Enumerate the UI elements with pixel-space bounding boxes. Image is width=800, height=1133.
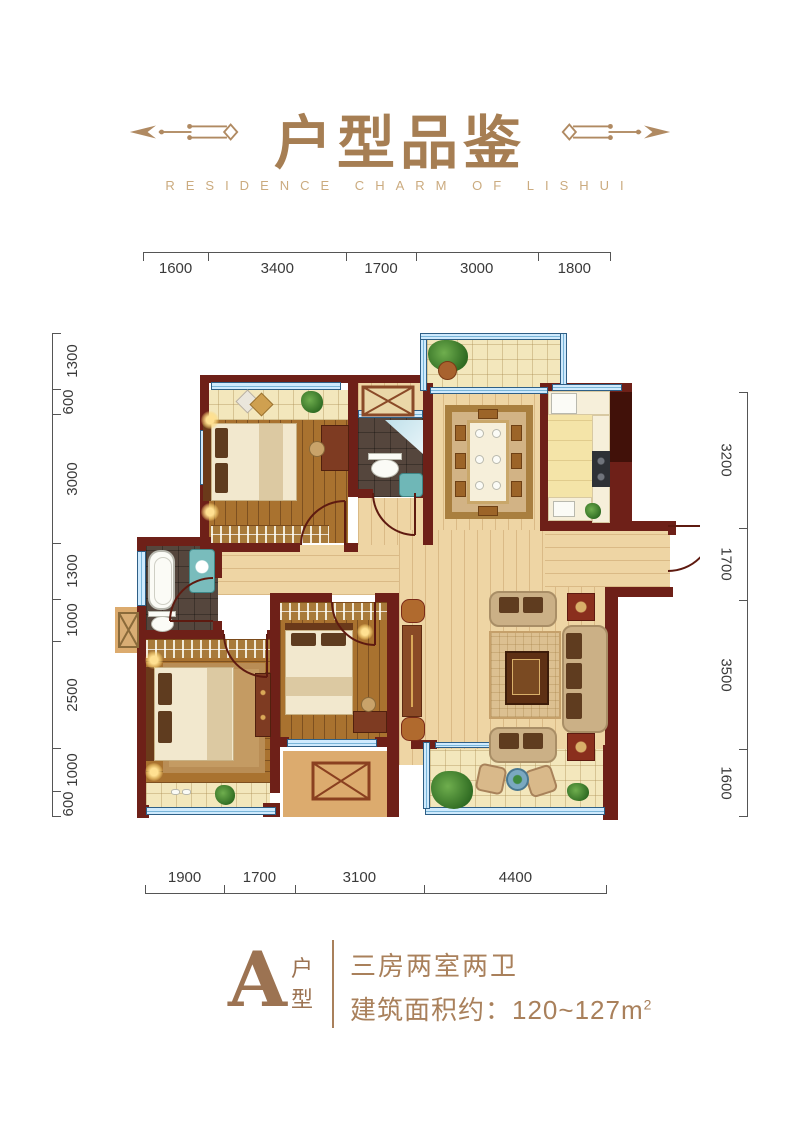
tick bbox=[739, 392, 748, 393]
dim-track bbox=[747, 392, 748, 817]
title-flourish-left-icon bbox=[128, 118, 240, 146]
dim-line-top: 1600 3400 1700 3000 1800 bbox=[143, 252, 611, 288]
footer-divider bbox=[332, 940, 334, 1028]
dim-label: 1700 bbox=[243, 869, 276, 886]
tick bbox=[224, 885, 225, 894]
dim-line-bottom: 1900 1700 3100 4400 bbox=[145, 858, 607, 894]
shaft-symbols bbox=[119, 387, 413, 799]
dim-track bbox=[143, 252, 611, 253]
tick bbox=[52, 333, 61, 334]
tick bbox=[538, 252, 539, 261]
tick bbox=[52, 748, 61, 749]
tick bbox=[52, 641, 61, 642]
dim-label: 3000 bbox=[460, 260, 493, 277]
dim-label: 3100 bbox=[343, 869, 376, 886]
dim-label: 1900 bbox=[168, 869, 201, 886]
dim-label: 1700 bbox=[364, 260, 397, 277]
tick bbox=[145, 885, 146, 894]
dim-label: 4400 bbox=[499, 869, 532, 886]
dim-label: 1600 bbox=[718, 763, 735, 803]
tick bbox=[739, 528, 748, 529]
dim-label: 1000 bbox=[64, 753, 81, 786]
page-title: 户型品鉴 bbox=[0, 96, 800, 180]
door-arcs bbox=[170, 493, 700, 677]
dim-label: 3400 bbox=[261, 260, 294, 277]
dim-line-right: 3200 1700 3500 1600 bbox=[732, 392, 762, 817]
unit-letter: A bbox=[228, 942, 287, 1018]
dim-label: 3000 bbox=[64, 462, 81, 495]
dim-line-left: 1300 600 3000 1300 1000 2500 1000 600 bbox=[52, 333, 86, 817]
area-superscript: 2 bbox=[644, 996, 653, 1012]
tick bbox=[346, 252, 347, 261]
tick bbox=[739, 749, 748, 750]
dim-label: 1600 bbox=[159, 260, 192, 277]
tick bbox=[208, 252, 209, 261]
rooms-description: 三房两室两卫 bbox=[350, 946, 518, 983]
tick bbox=[610, 252, 611, 261]
area-text: 建筑面积约：120~127m bbox=[350, 995, 644, 1025]
tick bbox=[739, 600, 748, 601]
floor-plan bbox=[115, 325, 700, 820]
dim-label: 2500 bbox=[64, 678, 81, 711]
title-flourish-right-icon bbox=[560, 118, 672, 146]
dim-label: 600 bbox=[60, 792, 77, 817]
dim-track bbox=[145, 893, 607, 894]
dim-track bbox=[52, 333, 53, 817]
tick bbox=[295, 885, 296, 894]
tick bbox=[143, 252, 144, 261]
tick bbox=[416, 252, 417, 261]
tick bbox=[52, 599, 61, 600]
dim-label: 1000 bbox=[64, 603, 81, 636]
unit-type-label: 户 型 bbox=[291, 953, 313, 1015]
tick bbox=[52, 543, 61, 544]
dim-label: 1300 bbox=[64, 554, 81, 587]
dim-label: 1800 bbox=[558, 260, 591, 277]
doors-and-shafts-overlay bbox=[115, 325, 700, 820]
tick bbox=[606, 885, 607, 894]
page-subtitle: RESIDENCE CHARM OF LISHUI bbox=[0, 178, 800, 193]
dim-label: 3200 bbox=[718, 440, 735, 480]
dim-label: 3500 bbox=[718, 655, 735, 695]
dim-label: 1300 bbox=[64, 344, 81, 377]
tick bbox=[424, 885, 425, 894]
dim-label: 600 bbox=[60, 389, 77, 414]
unit-type-char: 户 bbox=[291, 953, 313, 984]
poster-page: 户型品鉴 RESIDENCE CHARM OF LISHUI bbox=[0, 0, 800, 1133]
area-description: 建筑面积约：120~127m2 bbox=[350, 990, 652, 1027]
dim-label: 1700 bbox=[718, 544, 735, 584]
tick bbox=[739, 816, 748, 817]
unit-type-char: 型 bbox=[291, 984, 313, 1015]
